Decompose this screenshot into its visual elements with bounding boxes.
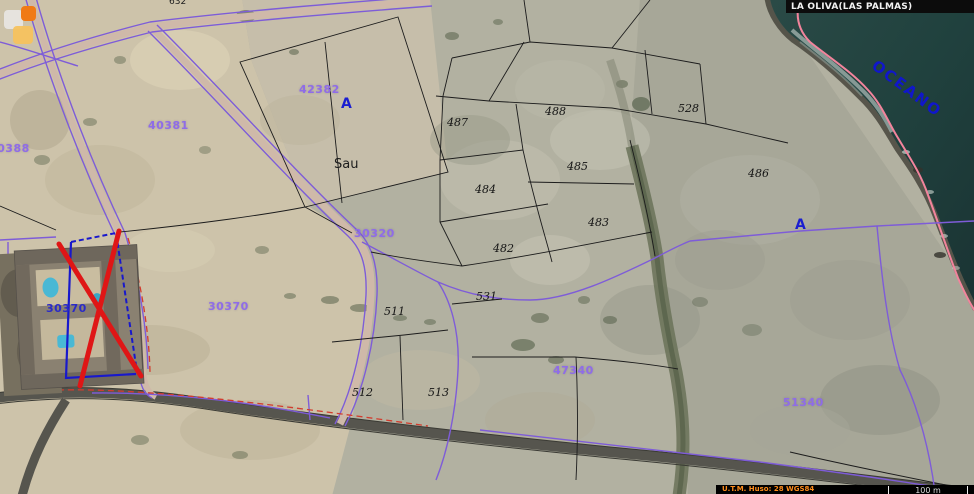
parcel-label-485: 485 [567, 161, 588, 172]
map-canvas[interactable]: 632 42382 A Sau 40381 30388 487 488 528 … [0, 0, 974, 494]
status-bar: U.T.M. Huso: 28 WGS84 100 m [716, 485, 974, 494]
parcel-label-512: 512 [352, 387, 373, 398]
parcel-label-482: 482 [493, 243, 514, 254]
place-label-sau: Sau [334, 158, 358, 171]
projection-label: U.T.M. Huso: 28 WGS84 [722, 485, 814, 494]
polygon-label-42382: 42382 [299, 84, 340, 95]
parcel-label-632: 632 [169, 0, 186, 7]
zone-label-a-right: A [795, 218, 806, 232]
parcel-label-531: 531 [476, 291, 497, 302]
polygon-label-30370-blue: 30370 [46, 303, 87, 314]
parcel-label-511: 511 [384, 306, 405, 317]
polygon-label-30388: 30388 [0, 143, 30, 154]
polygon-label-47340: 47340 [553, 365, 594, 376]
app-logo-icon[interactable] [3, 5, 39, 45]
parcel-label-513: 513 [428, 387, 449, 398]
parcel-label-483: 483 [588, 217, 609, 228]
zone-label-a-top: A [341, 97, 352, 111]
polygon-label-51340: 51340 [783, 397, 824, 408]
polygon-label-40381: 40381 [148, 120, 189, 131]
scale-bar: 100 m [888, 486, 968, 494]
municipality-bar: LA OLIVA(LAS PALMAS) [786, 0, 974, 13]
parcel-label-488: 488 [545, 106, 566, 117]
logo-orange-square [21, 6, 36, 21]
parcel-label-487: 487 [447, 117, 468, 128]
municipality-name: LA OLIVA(LAS PALMAS) [791, 2, 912, 12]
polygon-label-30370: 30370 [208, 301, 249, 312]
polygon-label-30320: 30320 [354, 228, 395, 239]
logo-amber-square [13, 26, 33, 44]
parcel-label-528: 528 [678, 103, 699, 114]
orthophoto-layer [0, 0, 974, 494]
parcel-label-486: 486 [748, 168, 769, 179]
parcel-label-484: 484 [475, 184, 496, 195]
